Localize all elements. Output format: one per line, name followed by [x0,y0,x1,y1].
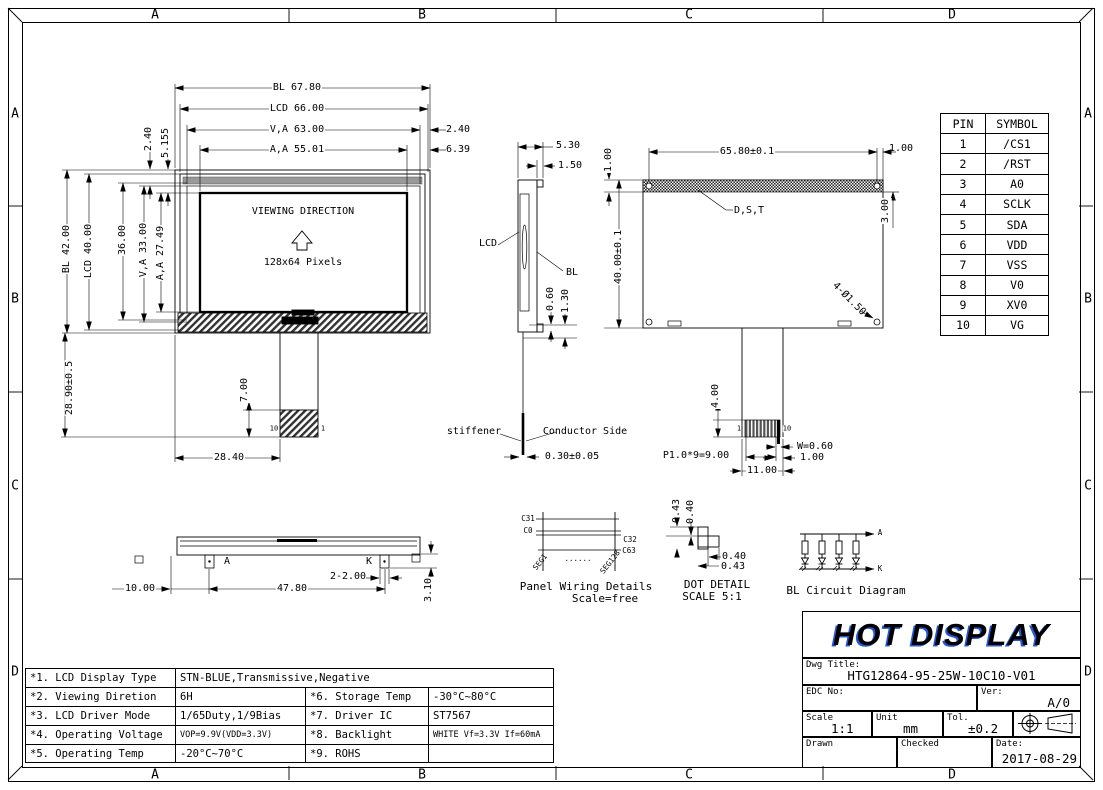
cathode-label: K [365,557,373,568]
table-row: 7VSS [941,255,1049,275]
wiring-c31-label: C31 [521,515,535,523]
dim-1100: 11.00 [746,466,778,477]
rear-pin1-label: 1 [737,425,741,432]
bl-led-branch [850,534,860,571]
conductor-side-label: Conductor Side [542,427,628,438]
pin-table-header-symbol: SYMBOL [986,114,1049,134]
bottom-view-drawing [135,537,420,568]
table-row: 9XV0 [941,295,1049,315]
tolerance-label: Tol. [947,713,969,723]
anode-label: A [223,557,231,568]
tolerance-value: ±0.2 [968,721,998,736]
date-value: 2017-08-29 [1002,751,1077,766]
table-row: 6VDD [941,235,1049,255]
dim-va-height: V,A 33.00 [139,222,150,278]
unit-value: mm [903,721,918,736]
company-logo: HOT DISPLAY [803,617,1080,653]
side-bl-label: BL [565,268,579,279]
drawing-sheet: A B C D A B C D A B C D A B C D [0,0,1103,790]
scale-cell: Scale 1:1 [802,711,872,737]
side-view-drawing [518,180,543,455]
edc-no-cell: EDC No: [802,685,977,711]
wiring-dots: ...... [564,555,591,563]
bl-led-branch [833,534,843,571]
dwg-title-value: HTG12864-95-25W-10C10-V01 [803,668,1080,683]
dim-lcd-height: LCD 40.00 [84,223,95,279]
table-row: *4. Operating Voltage VOP=9.9V(VDD=3.3V)… [26,725,554,744]
projection-symbol-cell [1013,711,1081,737]
checked-label: Checked [901,739,939,749]
pin-table: PIN SYMBOL 1/CS1 2/RST 3A0 4SCLK 5SDA 6V… [940,113,1049,336]
dim-fpc-thickness: 0.30±0.05 [544,452,600,463]
table-row: 1/CS1 [941,134,1049,154]
dim-530: 5.30 [555,141,581,152]
dim-bl-width: BL 67.80 [272,83,322,94]
table-row: 2/RST [941,154,1049,174]
dim-36: 36.00 [118,224,129,256]
drawn-label: Drawn [806,739,833,749]
viewing-direction-text: VIEWING DIRECTION [251,207,355,218]
table-row: *1. LCD Display Type STN-BLUE,Transmissi… [26,669,554,688]
rear-view-drawing [643,180,883,444]
table-row: *2. Viewing Diretion 6H *6. Storage Temp… [26,687,554,706]
scale-label: Scale [806,713,833,723]
dim-aa-offset: 6.39 [445,145,471,156]
edc-no-label: EDC No: [806,687,844,697]
table-row: 8V0 [941,275,1049,295]
dim-rear-300: 3.00 [881,198,892,224]
dot-detail-drawing [666,519,721,566]
dim-pin-100: 1.00 [799,453,825,464]
dim-rear-400: 4.00 [711,383,722,409]
dim-150: 1.50 [557,161,583,172]
table-row: 5SDA [941,214,1049,234]
version-cell: Ver: A/0 [977,685,1081,711]
dim-topleft-240: 2.40 [144,126,155,152]
dst-label: D,S,T [733,206,765,217]
dim-1000: 10.00 [124,584,156,595]
dim-2840: 28.40 [213,453,245,464]
drawn-cell: Drawn [802,737,897,768]
unit-label: Unit [876,713,898,723]
dim-connector-700: 7.00 [240,377,251,403]
dim-lcd-width: LCD 66.00 [269,104,325,115]
spec-table: *1. LCD Display Type STN-BLUE,Transmissi… [25,668,554,763]
stiffener-label: stiffener [446,427,502,438]
panel-wiring-scale: Scale=free [571,593,639,605]
circuit-anode-label: A [878,529,883,537]
dim-aa-width: A,A 55.01 [269,145,325,156]
dot-dim-v040: 0.40 [686,499,697,525]
version-label: Ver: [981,687,1003,697]
dot-dim-v043: 0.43 [672,498,683,524]
scale-value: 1:1 [831,721,854,736]
panel-wiring-caption: Panel Wiring Details [519,581,653,593]
pin-table-header-pin: PIN [941,114,986,134]
tolerance-cell: Tol. ±0.2 [943,711,1013,737]
dim-2200: 2-2.00 [329,572,367,583]
dim-rear-right-100: 1.00 [888,144,914,155]
dim-310: 3.10 [424,577,435,603]
wiring-c32-label: C32 [623,536,637,544]
viewing-direction-arrow-icon [292,231,312,250]
table-row: 10VG [941,315,1049,335]
dim-topleft-5155: 5.155 [161,127,172,159]
dim-tail-height: 28.90±0.5 [65,360,76,416]
rear-pin10-label: 10 [783,425,791,432]
front-view-dims [61,84,446,462]
dot-detail-scale: SCALE 5:1 [681,591,743,603]
bl-circuit-drawing [799,534,874,571]
bl-circuit-caption: BL Circuit Diagram [785,585,906,597]
version-value: A/0 [1047,695,1070,710]
dim-pin-width: W=0.60 [796,442,834,453]
dim-va-offset: 2.40 [445,125,471,136]
bl-led-branch [816,534,826,571]
dot-dim-h043: 0.43 [720,562,746,573]
dim-130: 1.30 [561,288,572,314]
table-row: *5. Operating Temp -20°C~70°C *9. ROHS [26,744,554,763]
dim-bl-height: BL 42.00 [62,224,73,274]
table-row: 3A0 [941,174,1049,194]
front-pin10-label: 10 [270,425,278,432]
date-cell: Date: 2017-08-29 [992,737,1081,768]
unit-cell: Unit mm [872,711,943,737]
dim-aa-height: A,A 27.49 [156,225,167,281]
bl-led-branch [799,534,809,571]
dim-va-width: V,A 63.00 [269,125,325,136]
title-block-logo-cell: HOT DISPLAY [802,611,1081,658]
title-block-dwg-cell: Dwg Title: HTG12864-95-25W-10C10-V01 [802,658,1081,685]
circuit-cathode-label: K [878,565,883,573]
wiring-c63-label: C63 [622,547,636,555]
side-lcd-label: LCD [478,239,498,250]
checked-cell: Checked [897,737,992,768]
date-label: Date: [996,739,1023,749]
front-pin1-label: 1 [321,425,325,432]
dim-rear-left-100: 1.00 [604,147,615,173]
pixel-resolution-text: 128x64 Pixels [263,258,343,269]
dot-detail-caption: DOT DETAIL [683,579,751,591]
table-row: *3. LCD Driver Mode 1/65Duty,1/9Bias *7.… [26,706,554,725]
dim-4780: 47.80 [276,584,308,595]
dim-pin-pitch: P1.0*9=9.00 [662,451,730,462]
dim-rear-width: 65.80±0.1 [719,147,775,158]
dim-rear-height: 40.00±0.1 [614,229,625,285]
table-row: 4SCLK [941,194,1049,214]
dim-060: 0.60 [546,286,557,312]
projection-symbol-icon [1014,712,1080,735]
wiring-c0-label: C0 [523,527,532,535]
